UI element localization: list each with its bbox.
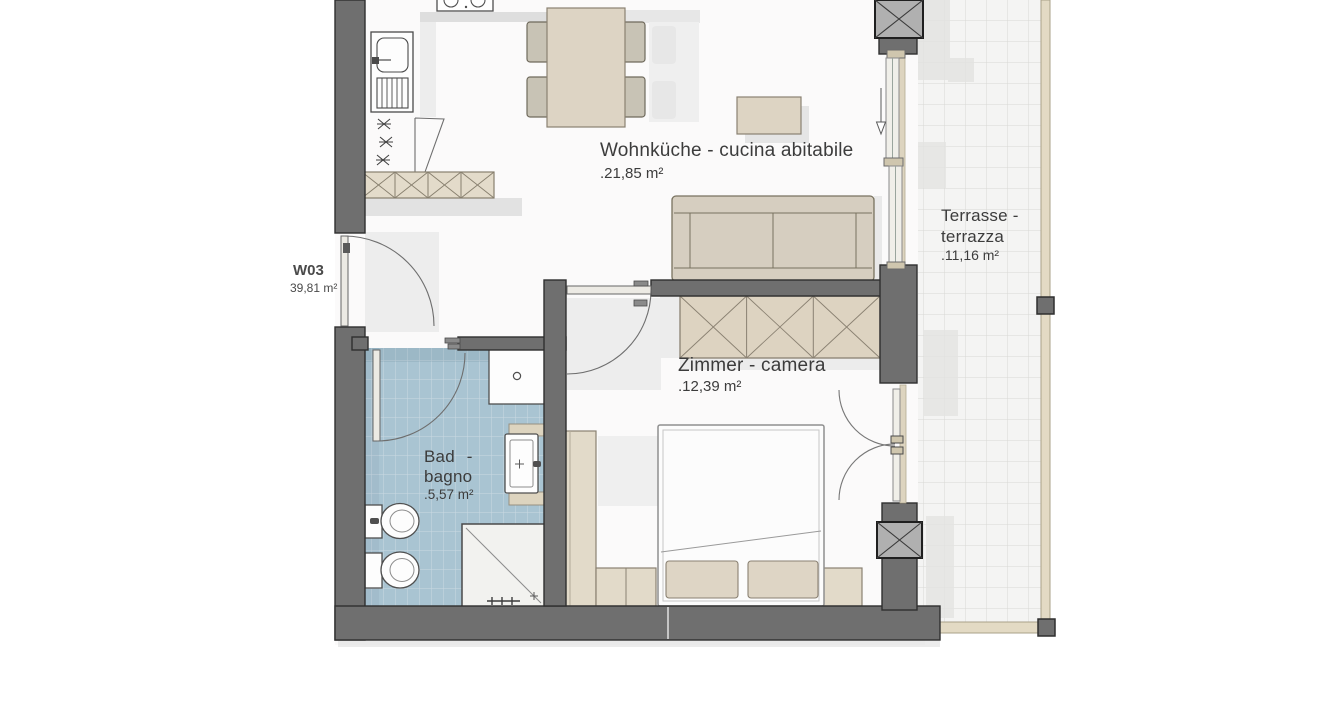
door-handle-icon [891,447,903,454]
wall [882,558,917,610]
door-jamb [634,281,648,286]
door-handle-icon [343,243,350,253]
wall [651,280,884,296]
wall [352,337,368,350]
bath-area: .5,57 m² [424,488,474,503]
wall [335,0,365,233]
floorplan-drawing [0,0,1340,705]
column [875,0,923,38]
side-table [737,97,809,143]
door-leaf [373,350,380,441]
bed [658,425,824,606]
door-leaf [893,389,900,441]
unit-label: W03 [293,263,324,280]
pillow [666,561,738,598]
faucet-icon [372,57,379,64]
door-handle-icon [891,436,903,443]
shower [462,524,545,608]
railing-post [1038,619,1055,636]
bedroom-label: Zimmer - camera [678,356,826,377]
terrace-label-line2: terrazza [941,228,1004,247]
column [877,522,922,558]
unit-area: 39,81 m² [290,282,337,295]
terrace-area: .11,16 m² [941,248,999,263]
kitchen-sink [371,32,413,112]
wall [544,280,566,606]
bath-label-line1: Bad - [424,448,473,467]
railing-post [1037,297,1054,314]
door-jamb [448,344,460,349]
toilet [365,552,419,588]
wall [335,327,365,640]
dining-table [547,8,625,127]
wall [882,503,917,522]
wall [880,265,917,383]
faucet-icon [533,461,541,467]
bidet [365,504,419,539]
door-jamb [634,300,647,306]
washing-machine [489,349,545,404]
floorplan-page: Wohnküche - cucina abitabile .21,85 m² Z… [0,0,1340,705]
bathroom-sink [505,424,545,505]
bedroom-area: .12,39 m² [678,379,741,396]
door-leaf [893,449,900,501]
door-leaf [567,286,651,294]
sofa [672,196,874,281]
living-room-area: .21,85 m² [600,166,663,183]
living-room-label: Wohnküche - cucina abitabile [600,141,853,162]
wall [335,606,940,640]
faucet-icon [370,518,379,524]
pillow [748,561,818,598]
door-jamb [445,338,460,343]
bath-label-line2: bagno [424,468,472,487]
terrace-label-line1: Terrasse - [941,207,1019,226]
stove-icon [437,0,493,11]
wardrobe [680,296,880,358]
terrace-floor [918,0,1044,624]
kitchen-base-cabinets [362,172,494,198]
nightstand [820,568,862,606]
